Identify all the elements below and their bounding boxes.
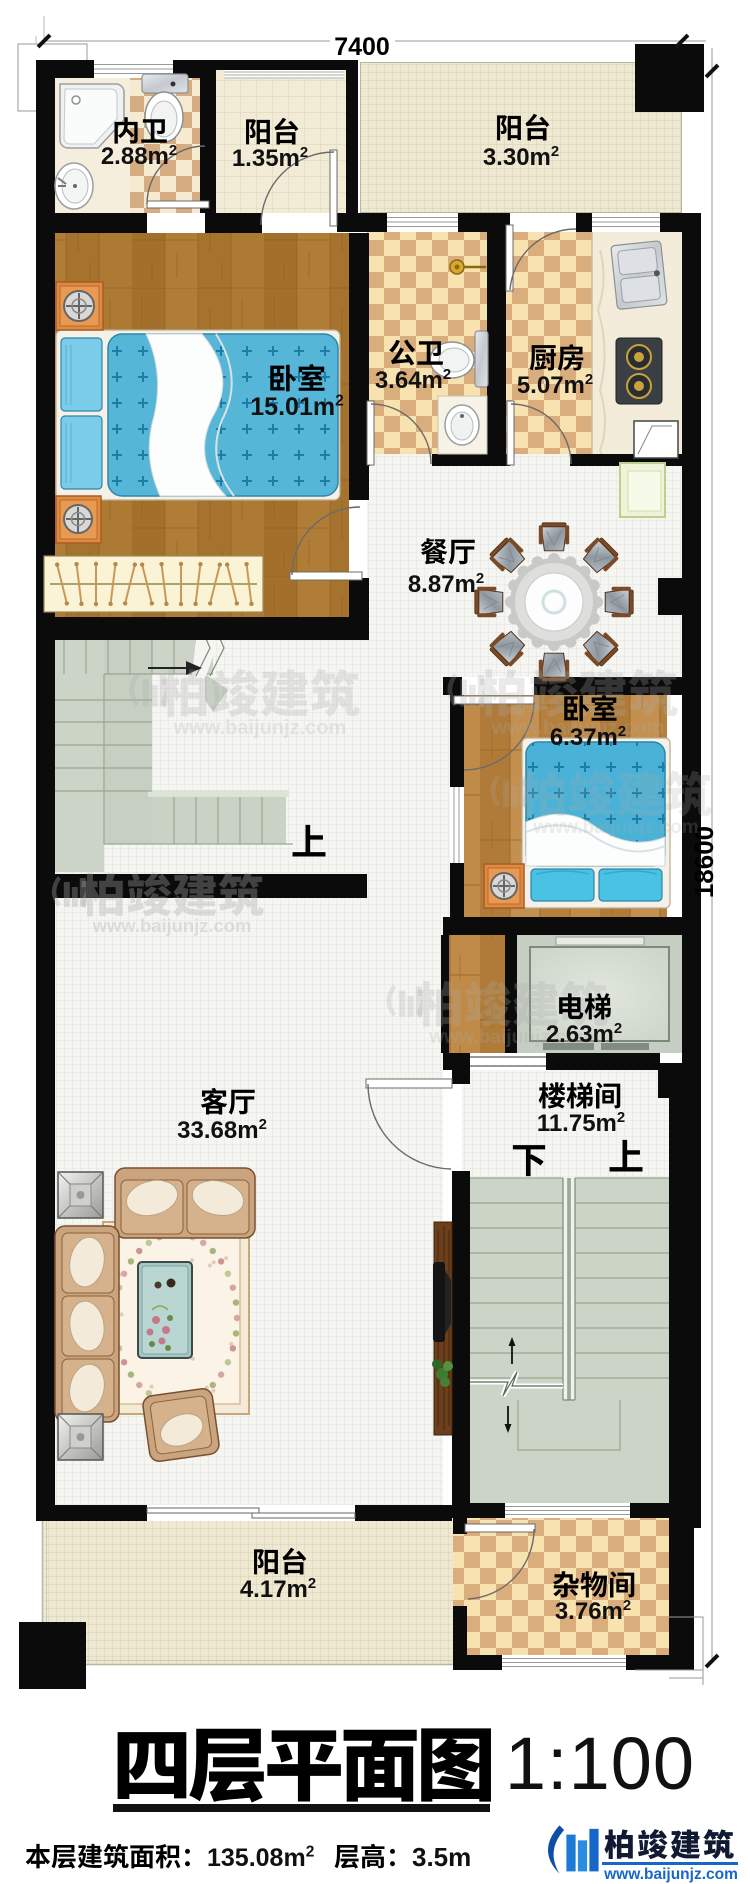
svg-text:www.baijunjz.com: www.baijunjz.com (603, 1866, 738, 1883)
svg-text:2.63m2: 2.63m2 (546, 1021, 622, 1048)
svg-text:www.baijunjz.com: www.baijunjz.com (173, 717, 347, 739)
svg-text:6.37m2: 6.37m2 (550, 724, 626, 751)
svg-text:7400: 7400 (334, 33, 390, 61)
svg-text:1.35m2: 1.35m2 (232, 145, 308, 172)
svg-text:33.68m2: 33.68m2 (177, 1117, 267, 1144)
svg-text:135.08m2: 135.08m2 (207, 1844, 314, 1873)
svg-text:8.87m2: 8.87m2 (408, 571, 484, 598)
svg-text:3.64m2: 3.64m2 (375, 367, 451, 394)
svg-text:5.07m2: 5.07m2 (517, 372, 593, 399)
svg-text:4.17m2: 4.17m2 (240, 1576, 316, 1603)
svg-text:3.30m2: 3.30m2 (483, 144, 559, 171)
svg-text:15.01m2: 15.01m2 (250, 393, 343, 422)
svg-text:www.baijunjz.com: www.baijunjz.com (532, 817, 699, 838)
svg-text:www.baijunjz.com: www.baijunjz.com (92, 915, 252, 936)
svg-text:3.76m2: 3.76m2 (555, 1598, 631, 1625)
svg-text:1:100: 1:100 (505, 1722, 695, 1805)
svg-text:11.75m2: 11.75m2 (537, 1110, 625, 1137)
svg-text:2.88m2: 2.88m2 (101, 143, 177, 170)
svg-text:3.5m: 3.5m (412, 1842, 471, 1872)
